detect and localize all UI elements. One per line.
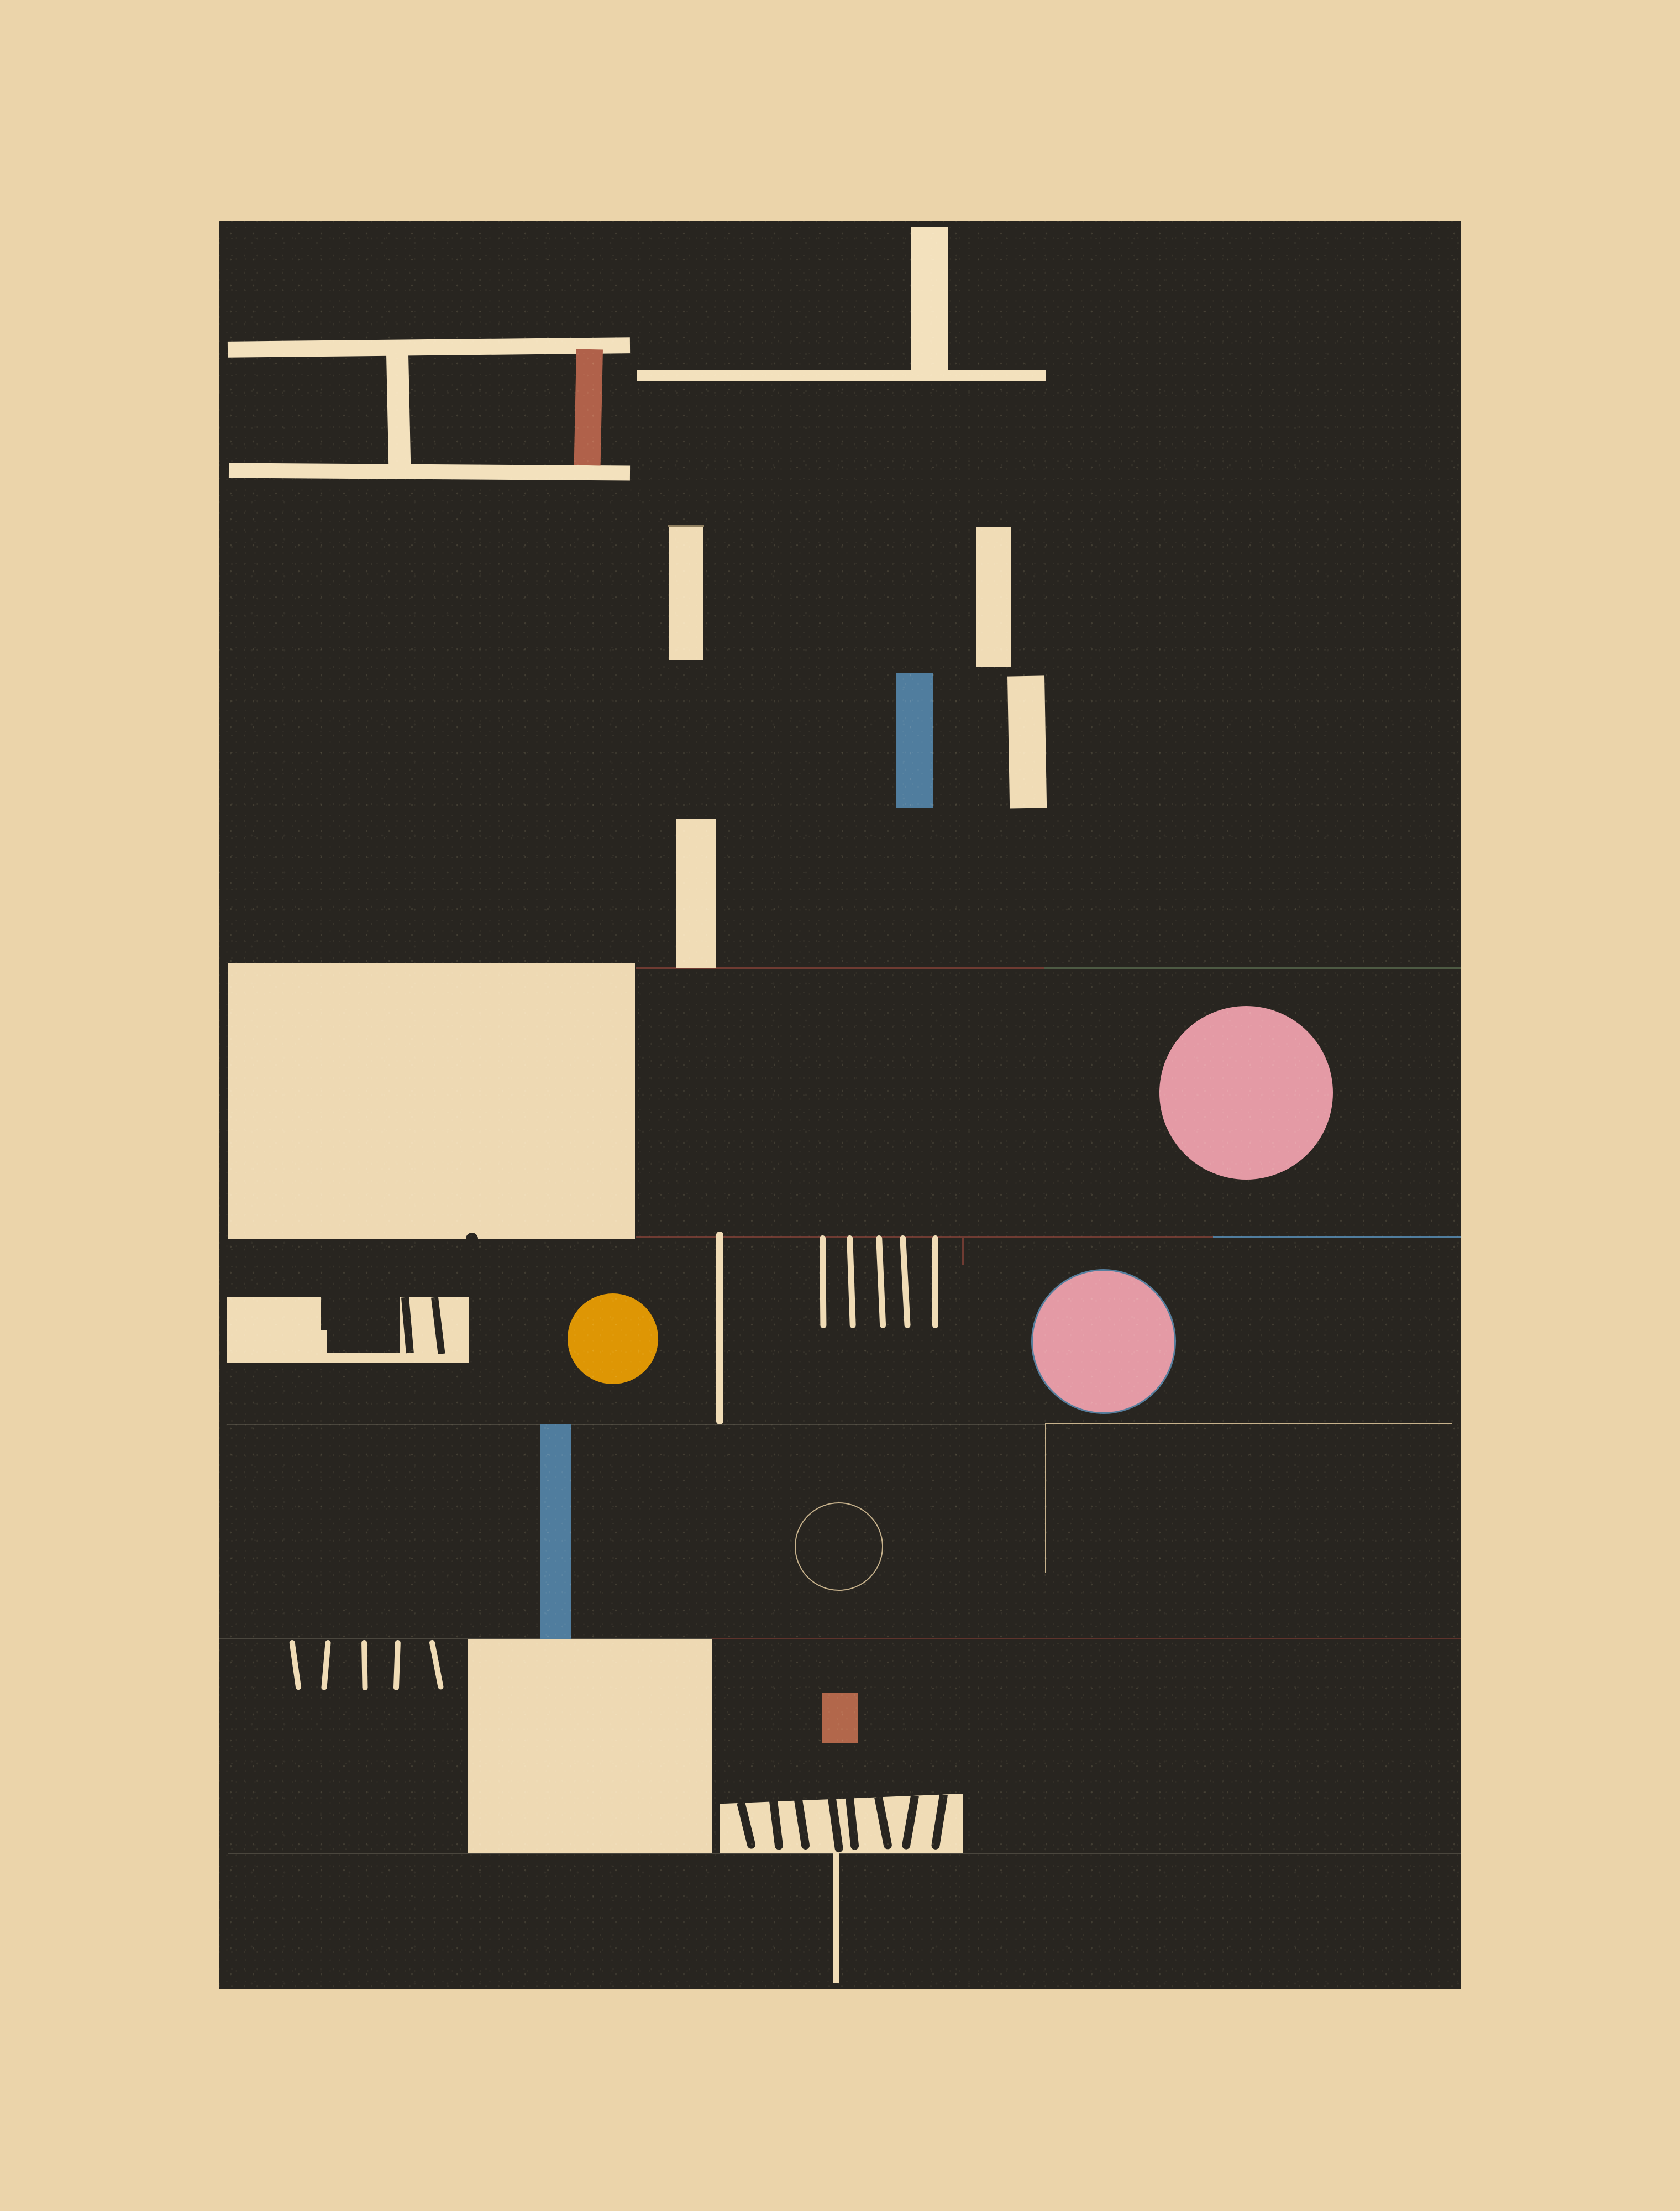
ladder-top-rail (228, 337, 630, 358)
tick-3 (361, 1640, 368, 1690)
big-rectangle-notch (466, 1233, 478, 1245)
abstract-art-poster (0, 0, 1680, 2211)
divider-4-maroon-line (712, 1638, 1461, 1639)
big-rectangle (228, 963, 635, 1239)
pink-circle-large (1159, 1006, 1333, 1180)
outline-rect-left (1045, 1423, 1046, 1573)
cream-bar-mid (1007, 675, 1047, 808)
dark-art-canvas (219, 221, 1461, 1989)
band-tail-line (833, 1853, 839, 1983)
blue-bar-upper (896, 673, 933, 808)
hatch-line-3 (876, 1235, 886, 1328)
tick-2 (321, 1640, 331, 1691)
cream-square (468, 1639, 712, 1853)
notch-slit-1 (321, 1297, 327, 1330)
hang-bar-right (977, 527, 1011, 667)
blue-bar-lower (540, 1424, 571, 1639)
tbar-horizontal (637, 370, 1046, 381)
hatch-line-1 (820, 1235, 826, 1328)
divider-2-blue-line (1213, 1236, 1461, 1238)
tbar-stem (911, 227, 948, 371)
rust-rectangle (822, 1693, 858, 1743)
notch-wide (327, 1297, 400, 1353)
orange-circle (568, 1293, 658, 1384)
hang-bar-left (669, 527, 704, 660)
ladder-post-cream (386, 354, 411, 466)
ladder-post-rust (574, 349, 603, 465)
hatch-line-2 (847, 1235, 856, 1328)
divider-2-maroon-tick (962, 1236, 964, 1265)
tick-5 (429, 1639, 444, 1690)
thin-vertical-line (716, 1232, 723, 1424)
tick-4 (393, 1640, 401, 1690)
circle-outline (795, 1502, 883, 1591)
outline-rect-top (1045, 1423, 1452, 1424)
divider-3-faint-line (227, 1424, 1045, 1425)
pink-circle-small (1031, 1269, 1176, 1414)
hatch-line-5 (932, 1235, 938, 1328)
hang-bar-lower (676, 819, 716, 968)
hatch-line-4 (900, 1235, 911, 1328)
ladder-bottom-rail (229, 463, 630, 480)
tick-1 (289, 1639, 302, 1690)
divider-1-green-line (1044, 967, 1461, 969)
